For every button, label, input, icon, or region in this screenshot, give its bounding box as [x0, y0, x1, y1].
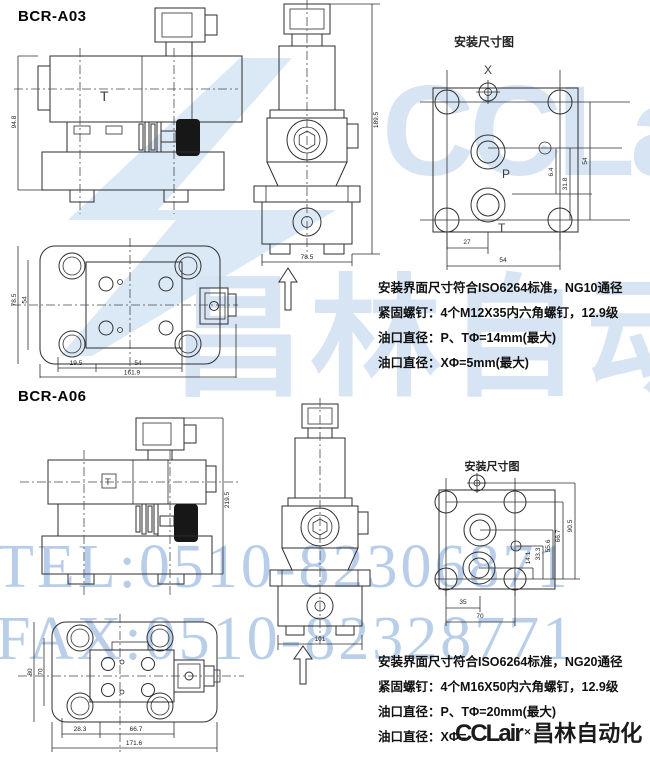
a06-side-view-drawing: T 219.5 [18, 400, 243, 605]
a03-front-view-drawing: 78.5 189.5 [232, 0, 390, 312]
a03-mount-dim-v3: 54 [582, 157, 589, 165]
a03-front-width-dim: 78.5 [301, 254, 314, 261]
a06-front-view-drawing: 101 [250, 398, 390, 662]
a06-top-height-outer-dim: 80 [27, 668, 34, 676]
a06-top-view-drawing: 80 70 28.3 66.7 171.6 [14, 610, 249, 757]
a06-top-height-inner-dim: 70 [38, 668, 45, 676]
a03-top-height-outer-dim: 78.5 [11, 293, 18, 306]
a03-note-line-2: 紧固螺钉：4个M12X35内六角螺钉，12.9级 [378, 301, 650, 326]
a06-front-width-dim: 101 [315, 636, 326, 643]
a06-mount-dim-v3: 55.6 [545, 539, 552, 552]
a06-top-dim-a: 28.3 [74, 726, 87, 733]
a03-top-total-dim: 161.9 [124, 370, 141, 377]
a03-flow-direction-arrow-icon [277, 266, 299, 314]
a03-mount-dim-h1: 27 [463, 239, 471, 246]
a06-mount-dim-v4: 66.7 [555, 529, 562, 542]
a06-mount-dim-h2: 70 [476, 613, 484, 620]
a03-front-height-dim: 189.5 [373, 111, 380, 128]
a06-note-line-1: 安装界面尺寸符合ISO6264标准，NG20通径 [378, 650, 650, 675]
a03-side-height-dim: 94.8 [11, 115, 18, 128]
a03-mount-dim-v2: 31.8 [562, 177, 569, 190]
a06-top-dim-b: 66.7 [130, 726, 143, 733]
a03-side-view-drawing: T 94.8 [12, 0, 240, 236]
a03-port-p-label: P [502, 167, 510, 181]
a06-mount-diagram: 安装尺寸图 14.1 33.3 55.6 66.7 90.5 35 70 [430, 446, 650, 646]
a03-port-t-label: T [498, 221, 506, 235]
a03-note-line-3: 油口直径：P、TΦ=14mm(最大) [378, 326, 650, 351]
a03-mount-dim-h2: 54 [499, 257, 507, 264]
footer-logo-lightning-mark: ✕ [524, 727, 532, 738]
a03-mount-dim-v1: 6.4 [548, 167, 555, 176]
section-a03-title: BCR-A03 [18, 8, 87, 25]
a03-top-dim-a: 19.5 [70, 360, 83, 367]
a06-note-line-2: 紧固螺钉：4个M16X50内六角螺钉，12.9级 [378, 675, 650, 700]
a06-mount-title: 安装尺寸图 [465, 459, 520, 473]
a06-flow-direction-arrow-icon [292, 644, 314, 688]
a03-top-dim-b: 54 [134, 360, 142, 367]
a03-note-line-4: 油口直径：XΦ=5mm(最大) [378, 351, 650, 376]
a03-mount-diagram: 安装尺寸图 X P T 6.4 31.8 54 27 54 [392, 24, 650, 276]
a06-mount-dim-h1: 35 [459, 599, 467, 606]
footer-logo: CCLair ✕ 昌林自动化 [455, 721, 642, 747]
a06-side-height-dim: 219.5 [224, 491, 231, 508]
a03-notes: 安装界面尺寸符合ISO6264标准，NG10通径 紧固螺钉：4个M12X35内六… [378, 276, 650, 376]
a03-side-port-t-label: T [100, 88, 109, 104]
a06-mount-dim-v1: 14.1 [525, 551, 532, 564]
footer-logo-latin: CCLair [455, 721, 522, 747]
a03-top-height-inner-dim: 54 [22, 296, 29, 304]
a03-mount-title: 安装尺寸图 [454, 34, 514, 49]
footer-logo-cn: 昌林自动化 [532, 721, 642, 747]
a03-hand-knob [176, 119, 200, 156]
a06-mount-dim-v5: 90.5 [567, 519, 574, 532]
section-a06-title: BCR-A06 [18, 388, 87, 405]
a06-top-total-dim: 171.6 [126, 740, 143, 747]
catalog-page: CCLair 昌林自动化 TEL:0510-82306871 FAX:0510-… [0, 0, 650, 757]
a03-port-x-label: X [484, 63, 492, 77]
a03-top-view-drawing: 78.5 54 19.5 54 161.9 [10, 236, 240, 378]
a03-note-line-1: 安装界面尺寸符合ISO6264标准，NG10通径 [378, 276, 650, 301]
a06-side-port-t-label: T [105, 477, 111, 488]
a06-mount-dim-v2: 33.3 [535, 547, 542, 560]
